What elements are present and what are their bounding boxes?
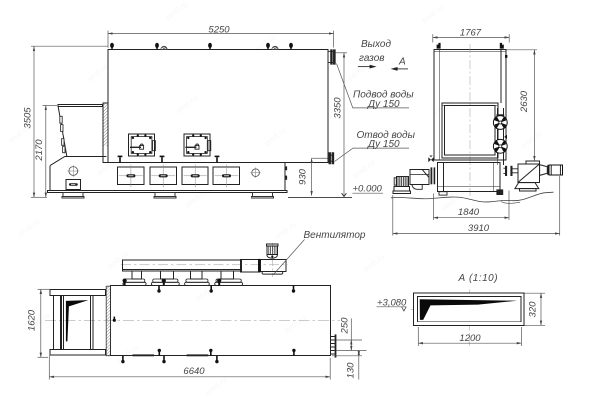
svg-text:5250: 5250 xyxy=(208,24,230,35)
svg-text:2170: 2170 xyxy=(34,139,45,162)
svg-text:2630: 2630 xyxy=(519,90,530,113)
svg-text:газов: газов xyxy=(359,53,384,64)
svg-text:250: 250 xyxy=(340,317,351,335)
svg-text:3350: 3350 xyxy=(333,97,344,119)
svg-text:1767: 1767 xyxy=(460,27,482,38)
svg-text:1840: 1840 xyxy=(458,207,480,218)
svg-text:3910: 3910 xyxy=(468,223,490,234)
svg-text:Вентилятор: Вентилятор xyxy=(304,230,366,241)
svg-text:930: 930 xyxy=(298,168,309,185)
svg-text:6640: 6640 xyxy=(183,366,205,377)
svg-text:Выход: Выход xyxy=(361,39,391,50)
svg-text:320: 320 xyxy=(527,301,538,318)
svg-text:130: 130 xyxy=(346,362,357,379)
svg-text:А (1:10): А (1:10) xyxy=(458,273,499,284)
svg-text:+0.000: +0.000 xyxy=(353,183,383,194)
svg-text:А: А xyxy=(398,57,406,68)
svg-text:1200: 1200 xyxy=(459,333,481,344)
